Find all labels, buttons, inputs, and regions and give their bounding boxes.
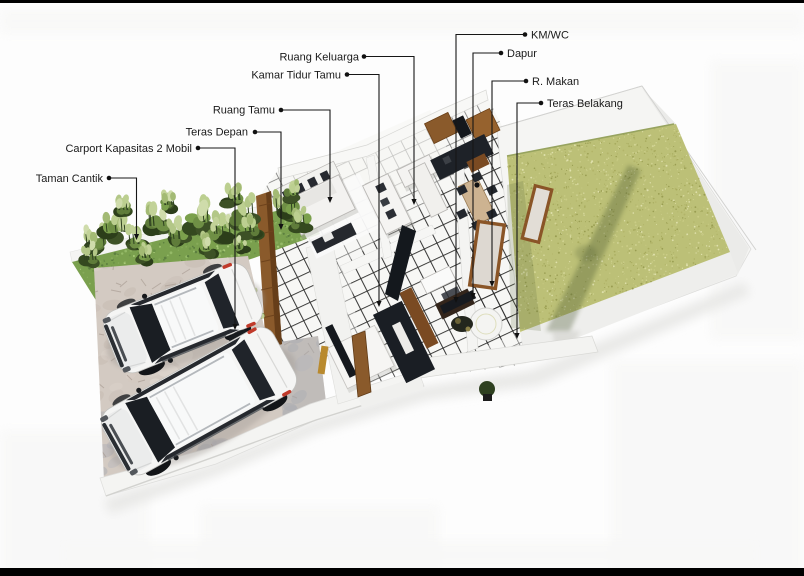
svg-text:Ruang Tamu: Ruang Tamu: [213, 105, 275, 117]
svg-text:KM/WC: KM/WC: [531, 30, 569, 42]
svg-text:Teras Depan: Teras Depan: [186, 127, 248, 139]
svg-text:Dapur: Dapur: [507, 48, 537, 60]
svg-text:R. Makan: R. Makan: [532, 76, 579, 88]
svg-text:Taman Cantik: Taman Cantik: [36, 173, 104, 185]
svg-text:Carport Kapasitas 2 Mobil: Carport Kapasitas 2 Mobil: [65, 143, 192, 155]
svg-text:Ruang Keluarga: Ruang Keluarga: [279, 52, 359, 64]
svg-text:Kamar Tidur Tamu: Kamar Tidur Tamu: [251, 70, 341, 82]
svg-text:Teras Belakang: Teras Belakang: [547, 98, 623, 110]
